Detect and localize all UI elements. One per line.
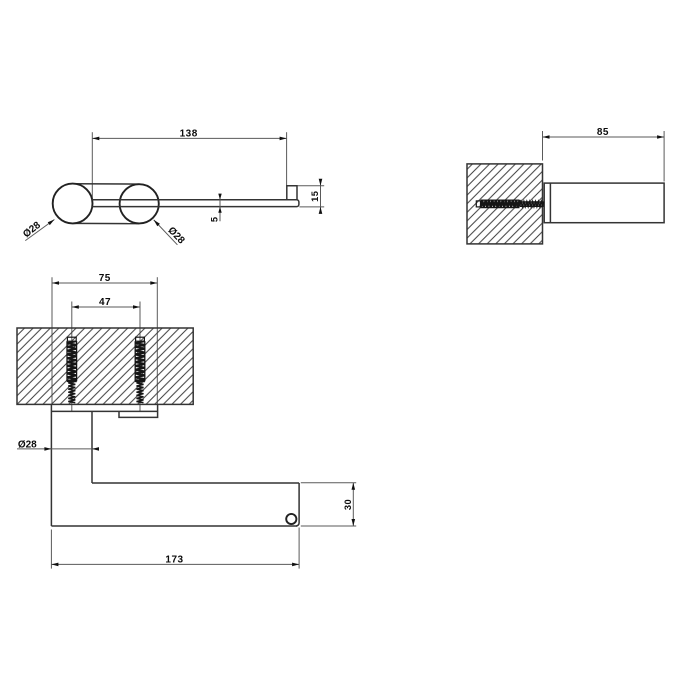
- svg-text:Ø28: Ø28: [18, 440, 37, 451]
- svg-text:30: 30: [343, 499, 353, 510]
- svg-text:138: 138: [180, 129, 198, 140]
- svg-text:75: 75: [99, 273, 111, 284]
- svg-text:85: 85: [597, 127, 609, 138]
- svg-text:5: 5: [210, 217, 220, 223]
- svg-text:15: 15: [310, 191, 320, 202]
- svg-text:47: 47: [99, 297, 111, 308]
- svg-text:173: 173: [165, 555, 183, 566]
